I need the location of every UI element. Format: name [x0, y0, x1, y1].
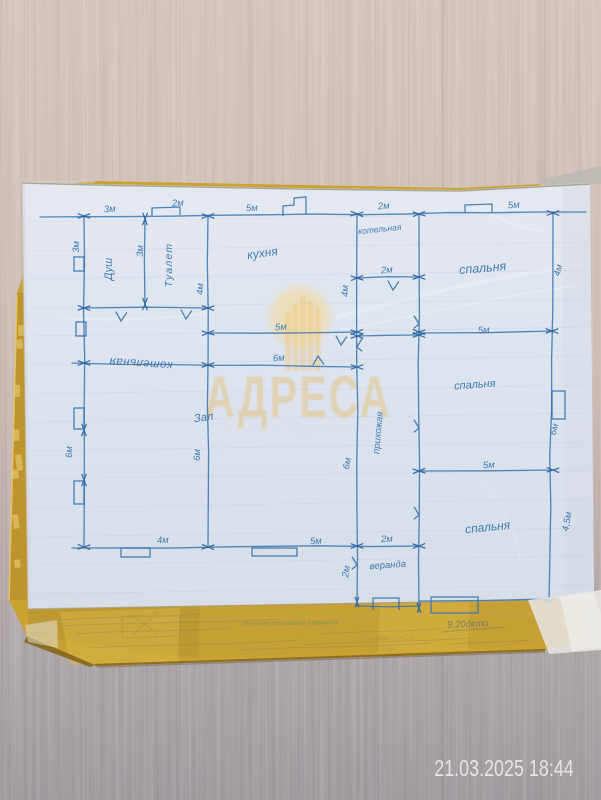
svg-text:3м: 3м [135, 245, 146, 257]
svg-text:АГЕНТСТВО НЕДВИЖИМОСТИ: АГЕНТСТВО НЕДВИЖИМОСТИ [222, 425, 374, 437]
svg-text:2м: 2м [340, 564, 353, 579]
svg-text:4м: 4м [340, 285, 351, 297]
svg-text:2м: 2м [171, 198, 185, 210]
svg-text:6м: 6м [192, 449, 203, 461]
svg-text:Туалет: Туалет [163, 243, 175, 288]
svg-text:21.03.2025 18:44: 21.03.2025 18:44 [434, 756, 574, 782]
svg-text:шыная =3+2,3: шыная =3+2,3 [367, 635, 413, 643]
svg-text:6м: 6м [273, 353, 286, 365]
svg-text:6м: 6м [64, 446, 75, 458]
svg-text:5м: 5м [246, 203, 259, 215]
svg-text:Душ: Душ [103, 258, 115, 283]
svg-text:АДРЕСА: АДРЕСА [205, 364, 392, 430]
svg-text:5м: 5м [275, 322, 288, 334]
svg-text:4м: 4м [157, 535, 170, 547]
svg-text:5м: 5м [477, 324, 490, 336]
svg-text:1,75м: 1,75м [376, 646, 395, 653]
svg-text:2м: 2м [380, 265, 394, 277]
svg-text:5м: 5м [483, 460, 496, 472]
svg-text:3м: 3м [71, 241, 82, 253]
svg-text:2м: 2м [377, 201, 391, 213]
svg-text:6м: 6м [341, 456, 354, 470]
svg-text:4м: 4м [195, 283, 206, 295]
svg-text:5м: 5м [310, 536, 323, 548]
svg-text:2м: 2м [380, 534, 394, 546]
svg-text:3м: 3м [104, 204, 117, 216]
svg-text:5м: 5м [508, 200, 521, 212]
